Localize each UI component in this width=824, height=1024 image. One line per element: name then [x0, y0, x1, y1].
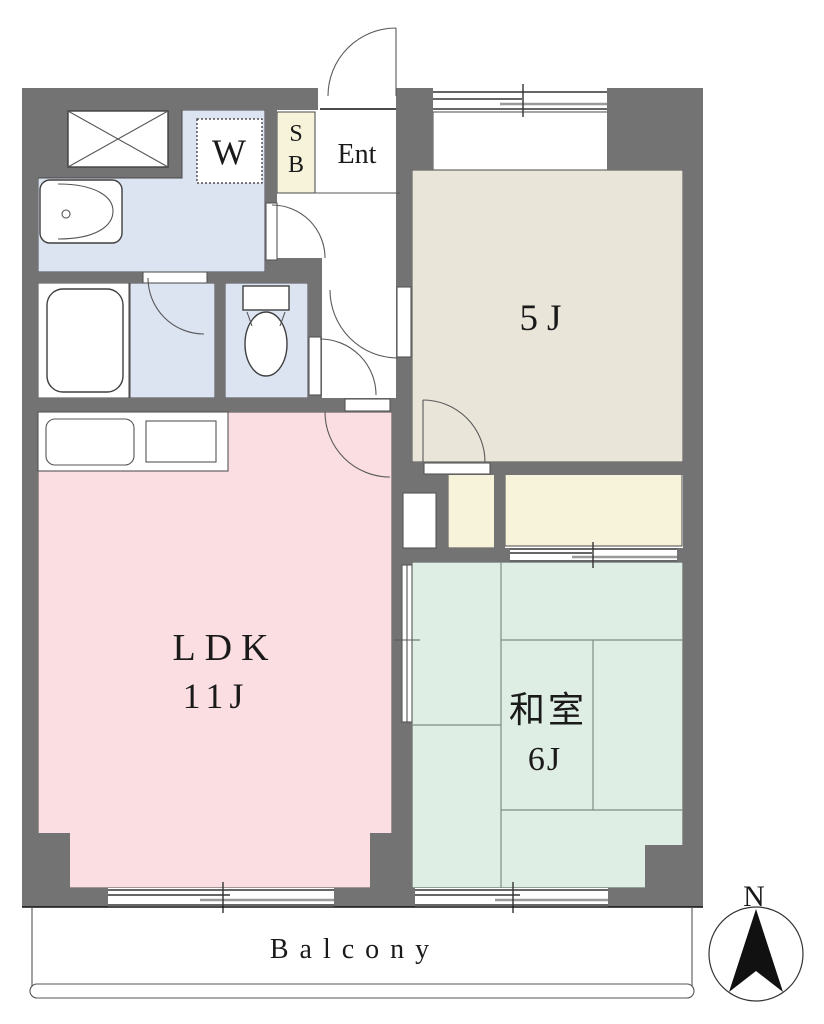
closet-large: [505, 473, 682, 546]
bathtub-icon: [47, 289, 123, 392]
entrance-label: Ent: [338, 139, 377, 170]
entrance-door-arc: [328, 28, 396, 96]
floor-plan-drawing: W S B Ent 5J LDK 11J 和室 6J Balcony N: [0, 0, 824, 1024]
balcony-rail: [30, 984, 694, 998]
balcony-label: Balcony: [270, 934, 440, 965]
washroom-door-leaf: [266, 203, 277, 260]
ldk-size-label: 11J: [183, 676, 250, 716]
floor-plan-page: W S B Ent 5J LDK 11J 和室 6J Balcony N: [0, 0, 824, 1024]
western-room-rear-door-opening: [424, 463, 490, 474]
stove-icon: [146, 421, 216, 462]
compass-icon: [709, 907, 803, 1001]
washer-pan-icon: [68, 111, 168, 167]
ldk-door-opening: [345, 399, 390, 411]
bath-washing-area-floor: [130, 283, 215, 398]
japanese-room-size-label: 6J: [528, 741, 562, 778]
compass-north-label: N: [743, 880, 765, 913]
shoe-box-label-s: S: [289, 121, 302, 147]
toilet-door-leaf: [309, 337, 321, 395]
closet-opening: [403, 493, 436, 548]
closet-label: W: [212, 132, 246, 172]
toilet-door-arc: [320, 339, 376, 395]
western-room-door-arc: [330, 290, 398, 358]
western-room-alcove: [433, 112, 611, 170]
vanity-sink-icon: [40, 180, 122, 243]
kitchen-sink-icon: [46, 419, 134, 465]
shoe-box-label-b: B: [288, 152, 304, 178]
toilet-icon: [243, 286, 289, 376]
washroom-door-arc: [272, 205, 325, 258]
ldk-label: LDK: [172, 627, 277, 669]
closet-small: [448, 473, 495, 548]
japanese-room-label: 和室: [509, 690, 587, 730]
western-room-door-opening: [397, 287, 411, 357]
kitchen-counter: [38, 412, 228, 471]
entrance-door-opening: [320, 88, 394, 110]
bath-door-leaf: [143, 272, 207, 283]
western-room-label: 5J: [520, 298, 571, 339]
